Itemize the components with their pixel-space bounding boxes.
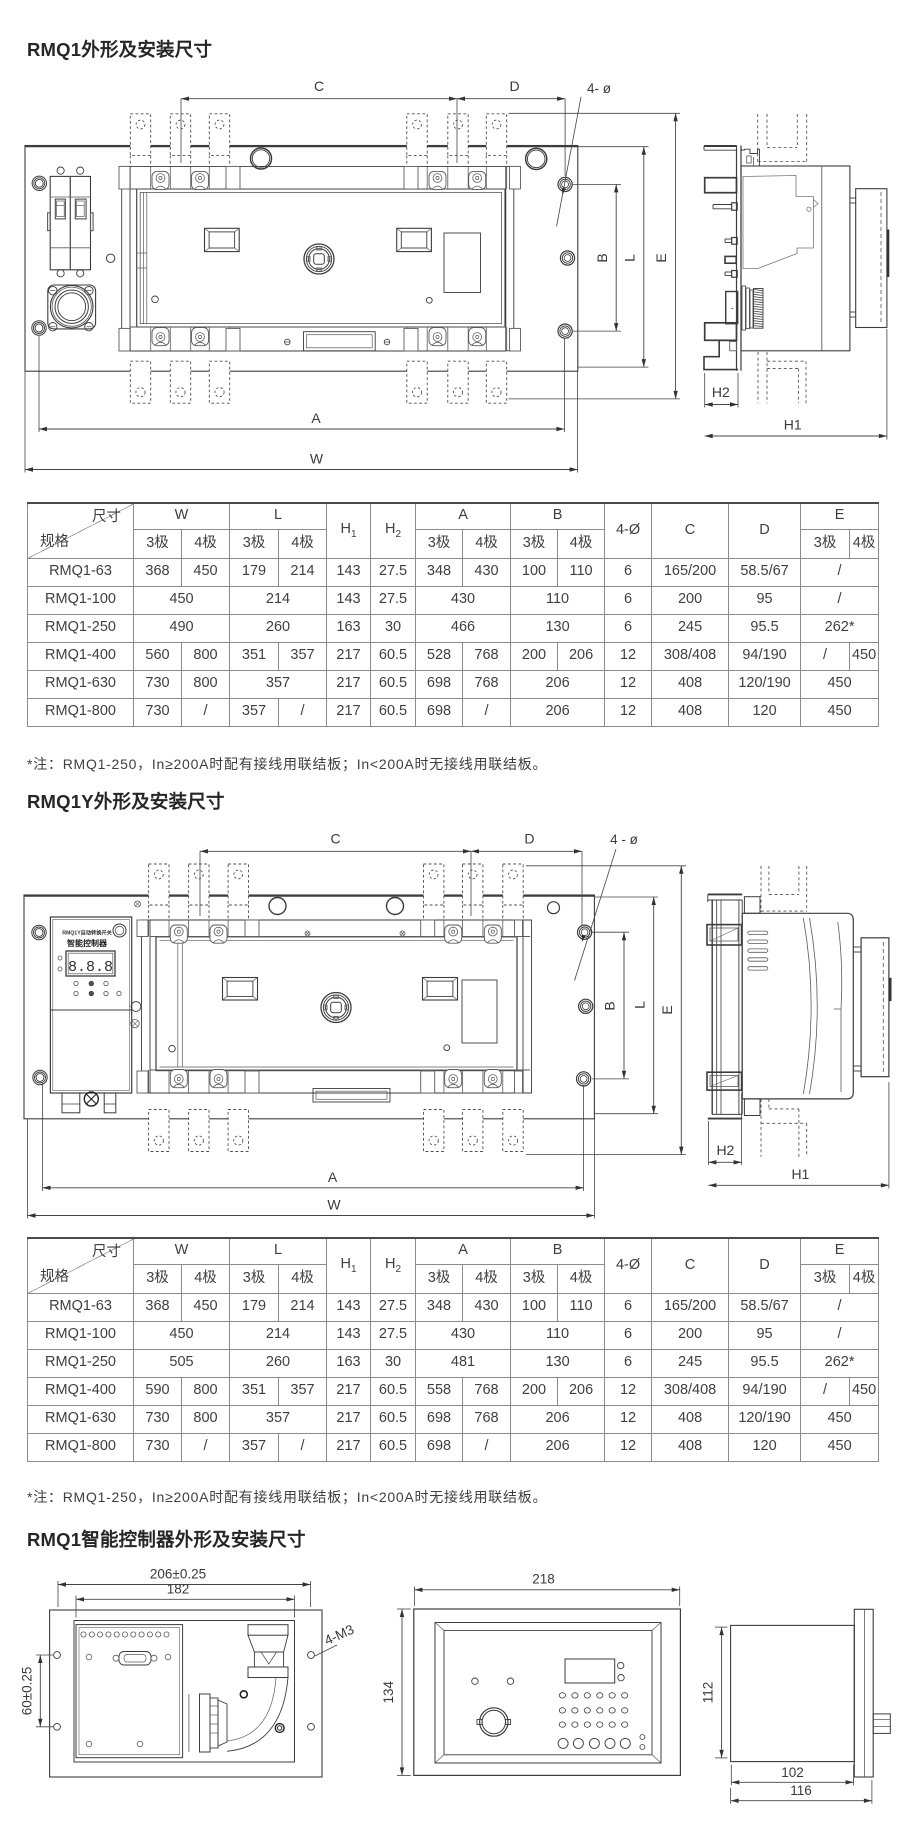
svg-text:4- ø: 4- ø	[587, 81, 611, 96]
svg-text:H2: H2	[716, 1142, 734, 1158]
svg-text:W: W	[310, 451, 324, 467]
svg-text:A: A	[328, 1169, 338, 1185]
svg-text:RMQ1Y自动转换开关: RMQ1Y自动转换开关	[62, 929, 112, 937]
svg-text:C: C	[314, 78, 324, 94]
svg-text:E: E	[653, 253, 669, 262]
svg-text:112: 112	[701, 1682, 716, 1704]
svg-text:H1: H1	[784, 417, 802, 433]
svg-text:B: B	[602, 1001, 618, 1010]
svg-text:D: D	[524, 831, 534, 847]
svg-text:8.8.8: 8.8.8	[68, 959, 113, 976]
svg-text:A: A	[311, 410, 321, 426]
svg-text:218: 218	[532, 1572, 555, 1587]
svg-text:智能控制器: 智能控制器	[67, 938, 108, 948]
svg-text:L: L	[631, 1001, 647, 1009]
svg-text:L: L	[622, 254, 638, 262]
svg-text:H2: H2	[712, 384, 730, 400]
svg-text:102: 102	[781, 1765, 804, 1780]
svg-text:60±0.25: 60±0.25	[20, 1667, 35, 1716]
svg-text:C: C	[330, 831, 340, 847]
svg-text:206±0.25: 206±0.25	[150, 1567, 206, 1582]
svg-text:134: 134	[381, 1680, 396, 1703]
svg-text:4 - ø: 4 - ø	[610, 832, 638, 847]
svg-text:B: B	[594, 253, 610, 262]
svg-text:H1: H1	[791, 1166, 809, 1182]
svg-text:116: 116	[790, 1783, 812, 1798]
svg-text:E: E	[659, 1005, 675, 1014]
svg-text:W: W	[327, 1197, 341, 1213]
svg-text:182: 182	[167, 1582, 190, 1597]
svg-text:4-M3: 4-M3	[322, 1622, 356, 1648]
svg-text:D: D	[509, 78, 519, 94]
